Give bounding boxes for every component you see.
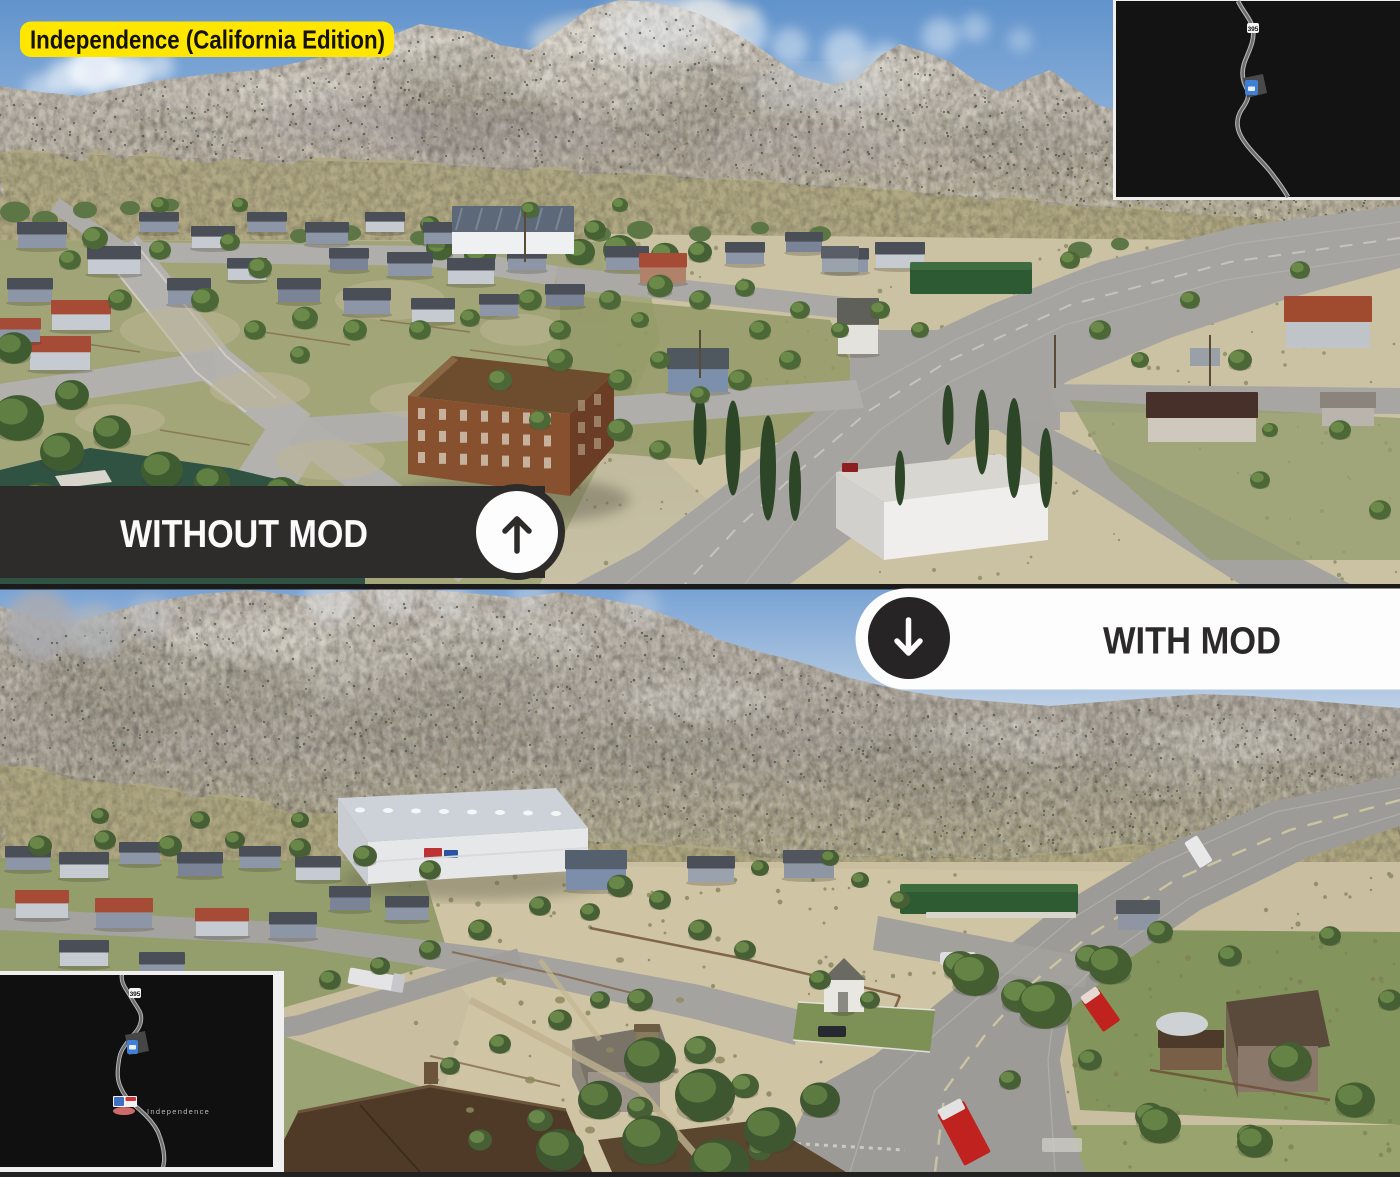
svg-text:395: 395 (1248, 26, 1259, 33)
svg-text:395: 395 (130, 991, 141, 998)
svg-text:WITHOUT MOD: WITHOUT MOD (120, 513, 368, 556)
svg-text:Independence (California Editi: Independence (California Edition) (30, 25, 385, 55)
svg-text:WITH MOD: WITH MOD (1103, 621, 1281, 663)
svg-text:Independence: Independence (147, 1107, 210, 1116)
